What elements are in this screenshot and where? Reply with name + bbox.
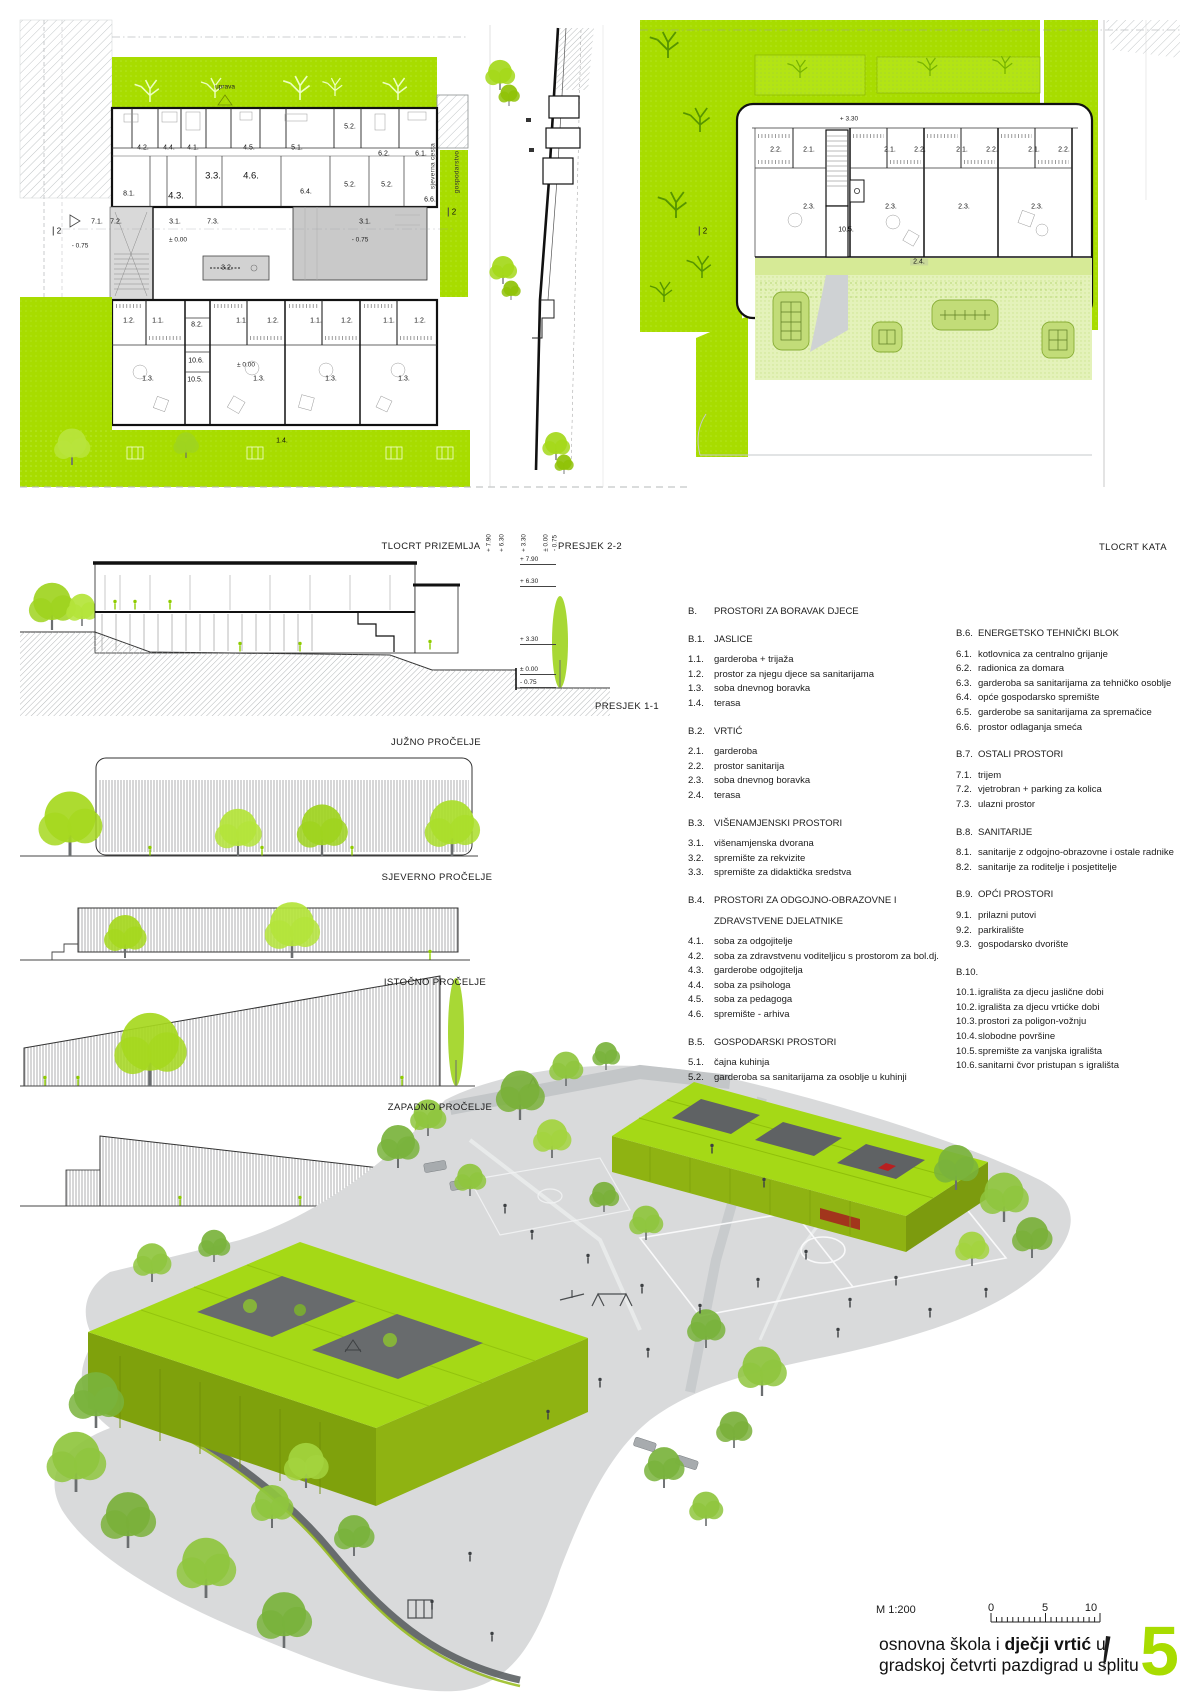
scale-bar <box>991 1613 1100 1622</box>
board-artwork <box>0 0 1200 1699</box>
section-2-2-drawing <box>485 25 603 487</box>
pencil-icon <box>1101 1636 1110 1671</box>
south-elevation-drawing <box>20 758 480 856</box>
upper-floor-plan-drawing <box>640 20 1180 487</box>
north-elevation-drawing <box>20 902 470 960</box>
render-3d <box>47 1042 1071 1691</box>
section-1-1-drawing <box>20 563 610 716</box>
ground-floor-plan-drawing <box>20 20 690 487</box>
competition-board: TLOCRT PRIZEMLJA PRESJEK 2-2 TLOCRT KATA… <box>0 0 1200 1699</box>
east-elevation-drawing <box>20 976 475 1086</box>
